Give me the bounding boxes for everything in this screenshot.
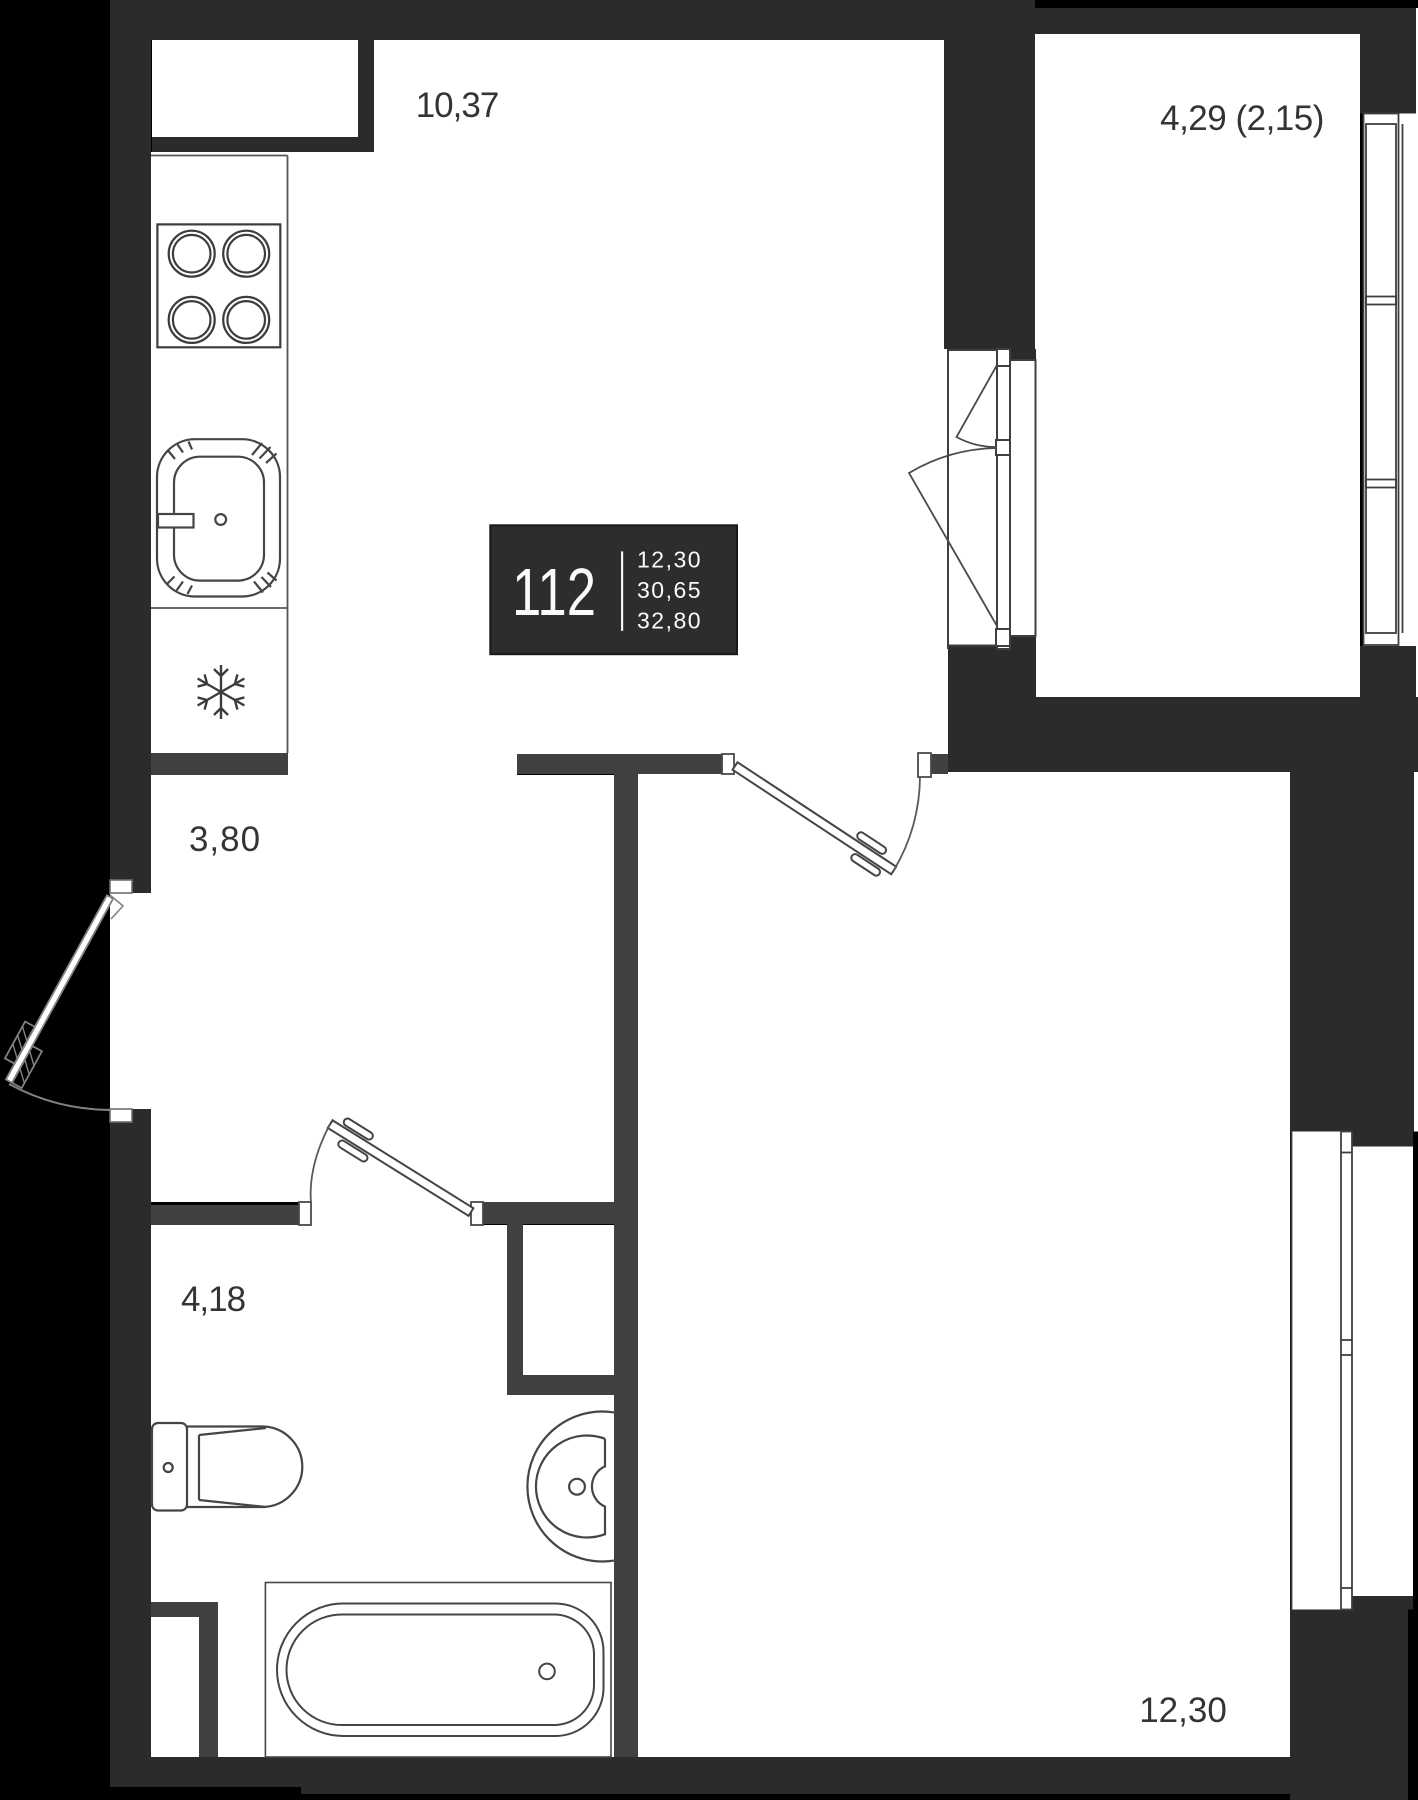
svg-text:4,18: 4,18 <box>181 1280 245 1319</box>
svg-text:4,29 (2,15): 4,29 (2,15) <box>1160 99 1324 138</box>
svg-text:3,80: 3,80 <box>189 820 261 859</box>
svg-text:12,30: 12,30 <box>637 547 702 573</box>
svg-text:12,30: 12,30 <box>1139 1691 1227 1730</box>
svg-text:30,65: 30,65 <box>637 577 702 603</box>
svg-text:10,37: 10,37 <box>416 86 499 125</box>
svg-text:112: 112 <box>512 555 596 629</box>
svg-text:32,80: 32,80 <box>637 607 702 633</box>
